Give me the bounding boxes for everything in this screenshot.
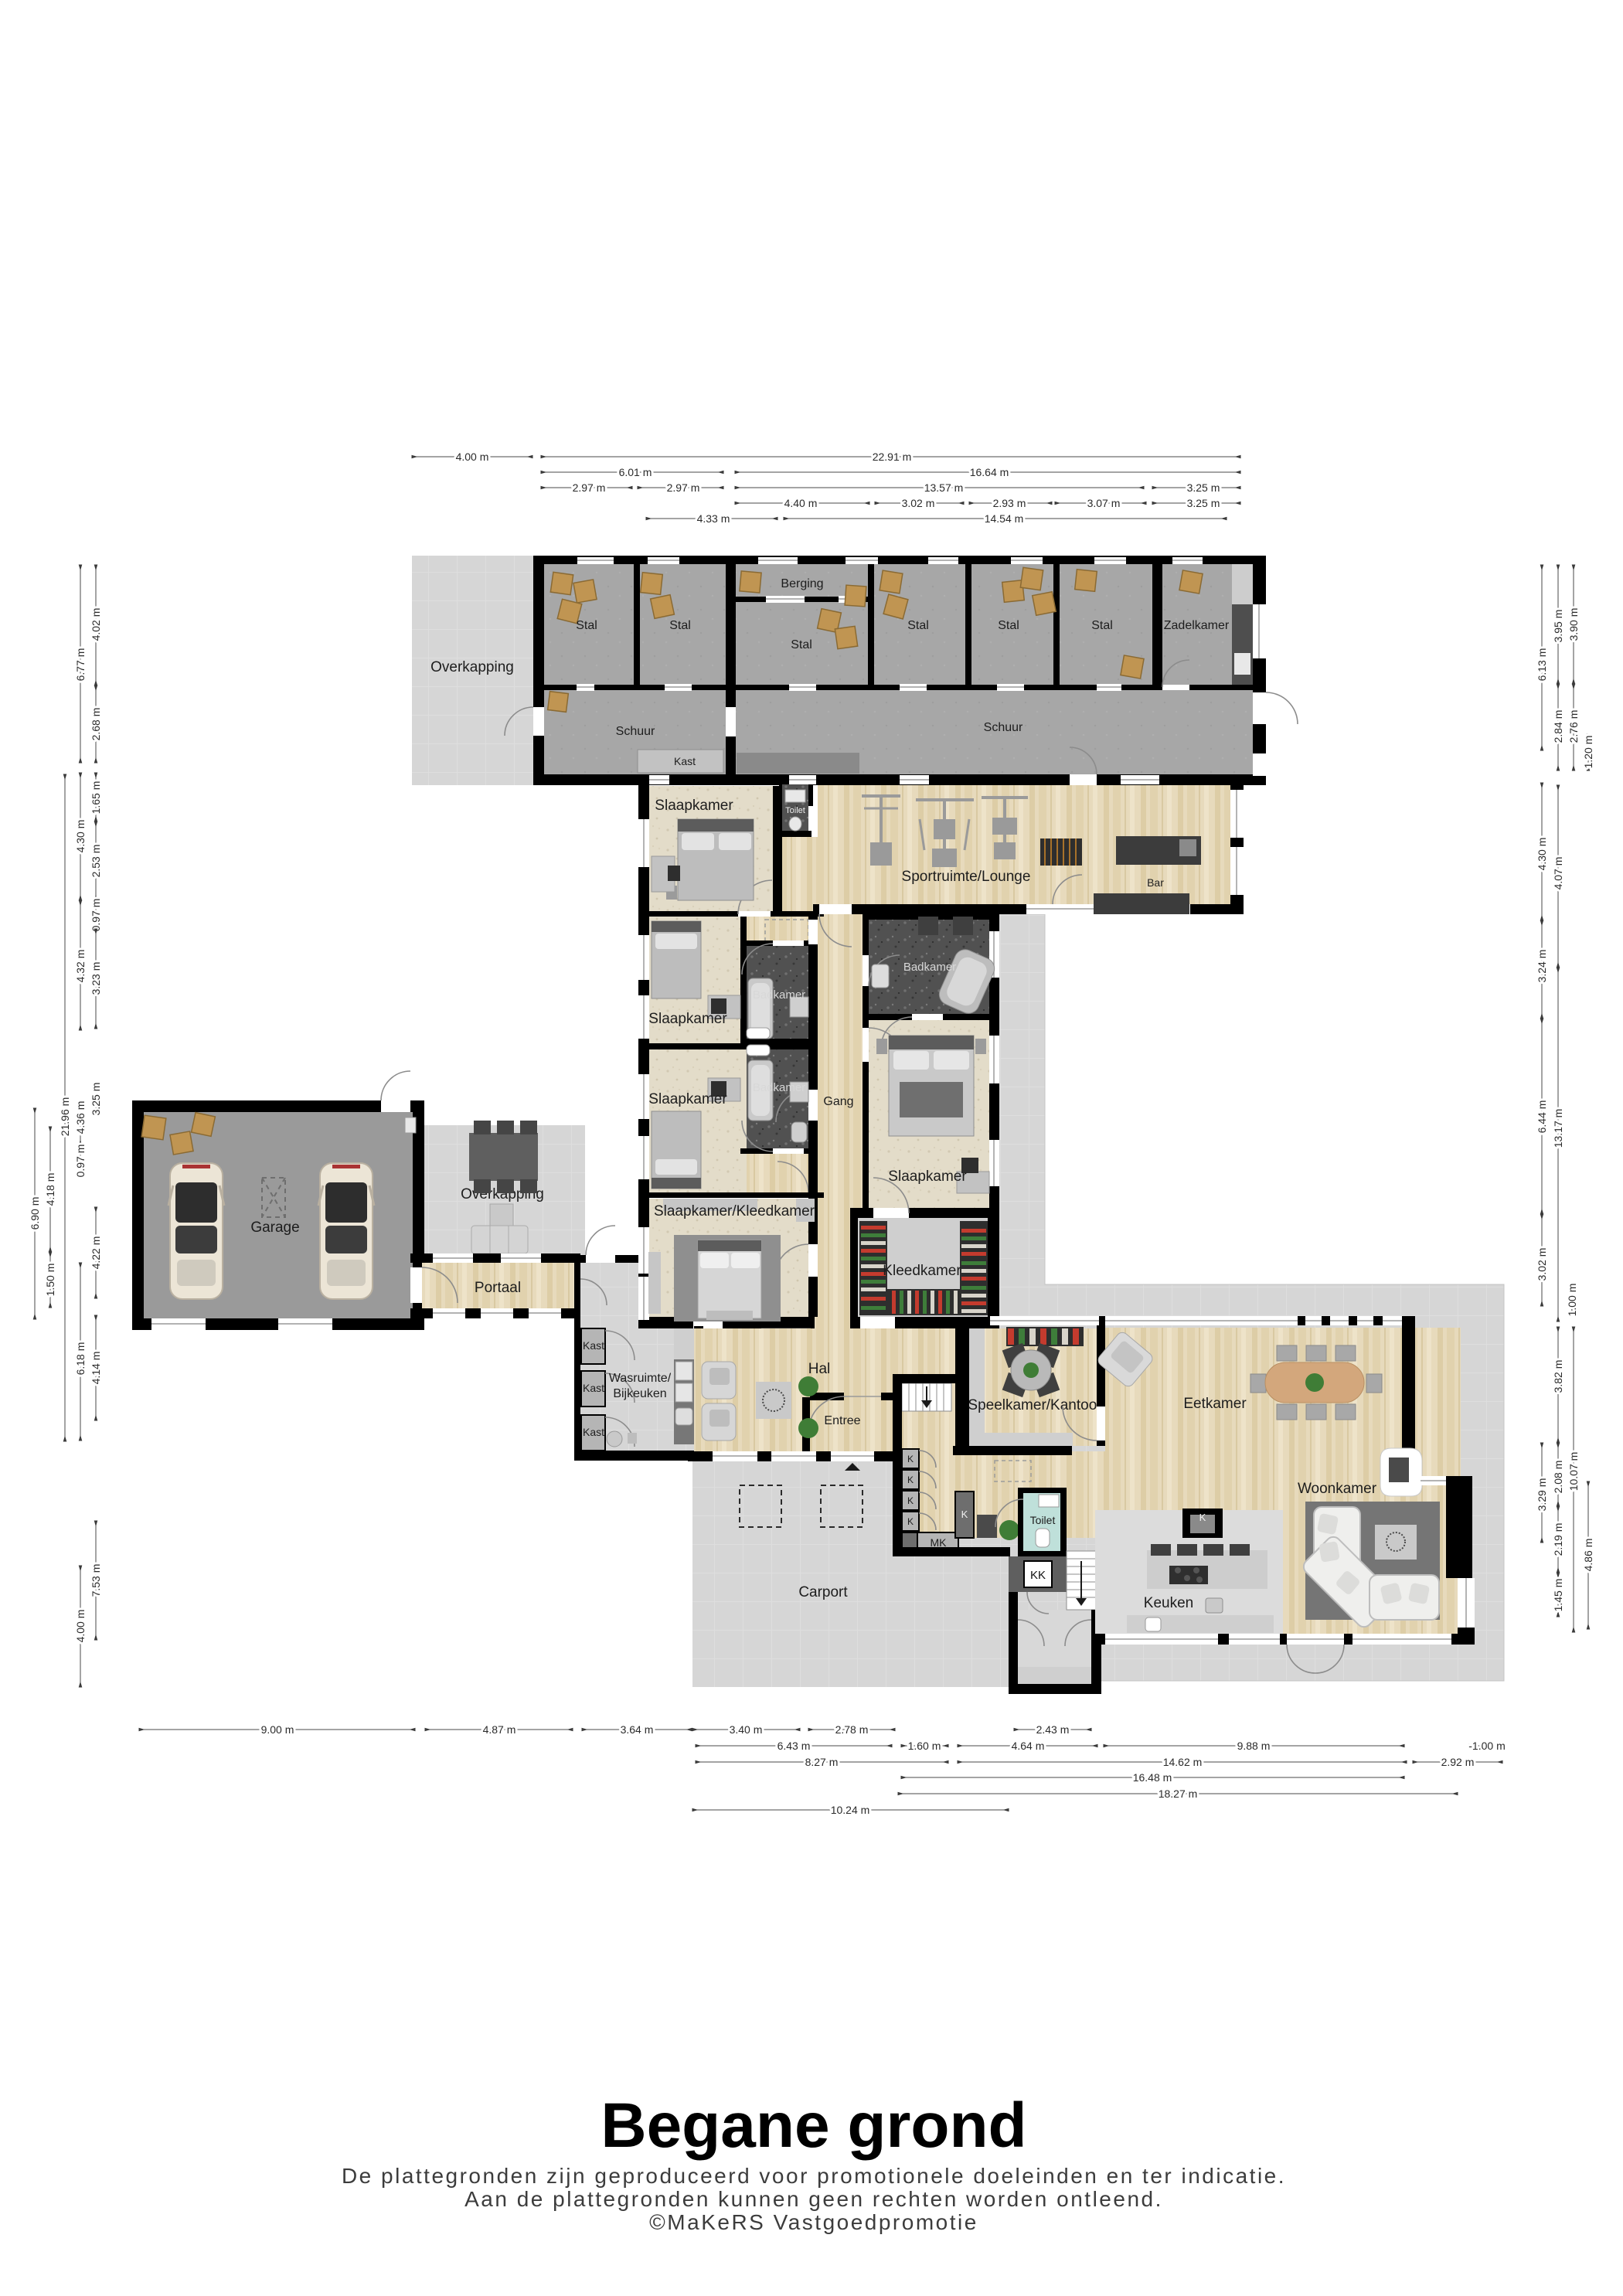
svg-text:10.07 m: 10.07 m [1567,1452,1580,1492]
svg-text:13.57 m: 13.57 m [924,481,964,494]
svg-text:Stal: Stal [791,638,812,651]
svg-text:4.86 m: 4.86 m [1582,1539,1594,1572]
svg-text:0.97 m: 0.97 m [74,1145,87,1178]
svg-text:MK: MK [931,1536,948,1549]
svg-text:16.48 m: 16.48 m [1133,1771,1172,1784]
svg-text:Bar: Bar [1147,876,1164,889]
svg-text:14.54 m: 14.54 m [985,512,1024,525]
svg-text:16.64 m: 16.64 m [970,466,1009,478]
svg-text:K: K [907,1475,914,1485]
svg-text:4.22 m: 4.22 m [90,1236,102,1270]
svg-text:Kast: Kast [583,1382,604,1394]
svg-text:Aan de plattegronden kunnen ge: Aan de plattegronden kunnen geen rechten… [464,2187,1163,2211]
svg-text:0.97 m: 0.97 m [90,899,102,932]
svg-text:Slaapkamer: Slaapkamer [648,1011,727,1027]
svg-text:Woonkamer: Woonkamer [1298,1481,1377,1497]
svg-text:3.25 m: 3.25 m [90,1083,102,1116]
svg-text:4.30 m: 4.30 m [1536,838,1548,871]
svg-text:2.76 m: 2.76 m [1567,710,1580,743]
svg-text:3.23 m: 3.23 m [90,962,102,995]
svg-text:2.08 m: 2.08 m [1552,1461,1564,1494]
svg-text:Slaapkamer/Kleedkamer: Slaapkamer/Kleedkamer [654,1203,815,1219]
svg-text:Badkamer: Badkamer [753,988,805,1002]
svg-text:1.45 m: 1.45 m [1552,1579,1564,1612]
svg-text:22.91 m: 22.91 m [873,451,912,463]
svg-text:4.87 m: 4.87 m [483,1723,516,1736]
svg-text:6.43 m: 6.43 m [777,1740,811,1752]
svg-text:4.14 m: 4.14 m [90,1352,102,1385]
svg-text:3.24 m: 3.24 m [1536,950,1548,983]
svg-text:2.68 m: 2.68 m [90,708,102,741]
svg-text:Berging: Berging [781,577,823,590]
svg-text:4.33 m: 4.33 m [697,512,730,525]
svg-text:4.36 m: 4.36 m [74,1101,87,1134]
svg-text:K: K [907,1454,914,1464]
svg-text:4.00 m: 4.00 m [74,1610,87,1643]
svg-text:2.53 m: 2.53 m [90,845,102,878]
svg-text:Stal: Stal [998,619,1019,632]
svg-text:Schuur: Schuur [616,725,655,738]
svg-text:K: K [1199,1512,1206,1523]
svg-text:Stal: Stal [669,619,691,632]
svg-text:2.19 m: 2.19 m [1552,1523,1564,1556]
svg-text:3.82 m: 3.82 m [1552,1360,1564,1393]
svg-text:Entree: Entree [824,1414,860,1427]
svg-text:Gang: Gang [823,1095,853,1108]
svg-text:6.01 m: 6.01 m [619,466,652,478]
svg-text:2.93 m: 2.93 m [993,497,1026,509]
svg-text:Overkapping: Overkapping [430,659,514,675]
svg-text:8.27 m: 8.27 m [805,1756,839,1768]
svg-text:K: K [961,1509,968,1520]
svg-text:2.97 m: 2.97 m [667,481,700,494]
svg-text:2.97 m: 2.97 m [573,481,606,494]
svg-text:1.65 m: 1.65 m [90,781,102,815]
svg-text:6.77 m: 6.77 m [74,648,87,682]
svg-text:Schuur: Schuur [984,721,1023,734]
svg-text:3.02 m: 3.02 m [902,497,935,509]
svg-text:4.02 m: 4.02 m [90,608,102,641]
svg-text:1.20 m: 1.20 m [1582,736,1594,769]
svg-text:3.64 m: 3.64 m [621,1723,654,1736]
svg-text:6.90 m: 6.90 m [29,1197,41,1230]
svg-text:©MaKeRS Vastgoedpromotie: ©MaKeRS Vastgoedpromotie [649,2210,978,2234]
svg-text:2.84 m: 2.84 m [1552,710,1564,743]
svg-text:21.96 m: 21.96 m [59,1097,71,1137]
svg-text:Toilet: Toilet [1030,1514,1056,1526]
svg-text:3.25 m: 3.25 m [1187,497,1220,509]
svg-text:Kleedkamer: Kleedkamer [883,1263,961,1279]
svg-text:Speelkamer/Kantoor: Speelkamer/Kantoor [968,1397,1102,1413]
svg-text:2.92 m: 2.92 m [1441,1756,1475,1768]
svg-text:6.18 m: 6.18 m [74,1342,87,1376]
svg-text:3.40 m: 3.40 m [730,1723,763,1736]
svg-text:9.00 m: 9.00 m [261,1723,294,1736]
svg-text:Stal: Stal [576,619,597,632]
svg-text:Stal: Stal [1091,619,1113,632]
svg-text:Badkamer: Badkamer [753,1081,805,1094]
svg-text:4.32 m: 4.32 m [74,950,87,983]
svg-text:Eetkamer: Eetkamer [1183,1396,1247,1412]
svg-text:14.62 m: 14.62 m [1163,1756,1203,1768]
svg-text:Portaal: Portaal [475,1280,521,1296]
svg-text:2.78 m: 2.78 m [835,1723,869,1736]
svg-text:Begane grond: Begane grond [601,2090,1026,2161]
svg-text:Carport: Carport [798,1584,848,1600]
svg-text:3.29 m: 3.29 m [1536,1478,1548,1512]
svg-text:3.90 m: 3.90 m [1567,608,1580,641]
svg-text:Keuken: Keuken [1144,1595,1193,1611]
svg-text:Bijkeuken: Bijkeuken [613,1387,666,1400]
svg-text:Zadelkamer: Zadelkamer [1164,619,1230,632]
svg-text:4.30 m: 4.30 m [74,820,87,853]
svg-text:Wasruimte/: Wasruimte/ [609,1372,672,1385]
svg-text:6.13 m: 6.13 m [1536,648,1548,682]
svg-text:10.24 m: 10.24 m [831,1804,870,1816]
svg-text:4.07 m: 4.07 m [1552,857,1564,890]
svg-text:9.88 m: 9.88 m [1237,1740,1271,1752]
svg-text:Kast: Kast [583,1339,604,1352]
svg-text:Slaapkamer: Slaapkamer [648,1091,727,1107]
svg-text:18.27 m: 18.27 m [1159,1787,1198,1800]
svg-text:7.53 m: 7.53 m [90,1564,102,1597]
svg-text:3.02 m: 3.02 m [1536,1248,1548,1281]
svg-text:1.60 m: 1.60 m [908,1740,941,1752]
svg-text:3.25 m: 3.25 m [1187,481,1220,494]
svg-text:KK: KK [1030,1569,1046,1582]
svg-text:4.18 m: 4.18 m [44,1173,56,1206]
svg-text:1.00 m: 1.00 m [1566,1284,1578,1317]
svg-text:K: K [907,1495,914,1506]
svg-text:De plattegronden zijn geproduc: De plattegronden zijn geproduceerd voor … [342,2164,1286,2188]
svg-text:3.95 m: 3.95 m [1552,610,1564,643]
svg-text:-1.00 m: -1.00 m [1468,1740,1505,1752]
svg-text:Kast: Kast [674,755,696,767]
svg-text:13.17 m: 13.17 m [1552,1109,1564,1148]
svg-text:Slaapkamer: Slaapkamer [888,1168,967,1185]
svg-text:Kast: Kast [583,1426,604,1438]
svg-text:Slaapkamer: Slaapkamer [655,798,733,814]
svg-text:Badkamer: Badkamer [903,961,956,974]
svg-text:K: K [907,1516,914,1527]
svg-text:1.50 m: 1.50 m [44,1264,56,1297]
svg-text:3.07 m: 3.07 m [1087,497,1121,509]
svg-text:4.00 m: 4.00 m [456,451,489,463]
svg-text:4.64 m: 4.64 m [1012,1740,1045,1752]
svg-text:Toilet: Toilet [785,806,805,815]
svg-text:Sportruimte/Lounge: Sportruimte/Lounge [902,869,1031,885]
svg-text:Garage: Garage [250,1219,299,1236]
svg-text:6.44 m: 6.44 m [1536,1100,1548,1134]
svg-text:2.43 m: 2.43 m [1036,1723,1070,1736]
svg-text:Stal: Stal [907,619,929,632]
svg-text:Hal: Hal [808,1361,831,1377]
svg-text:4.40 m: 4.40 m [784,497,818,509]
